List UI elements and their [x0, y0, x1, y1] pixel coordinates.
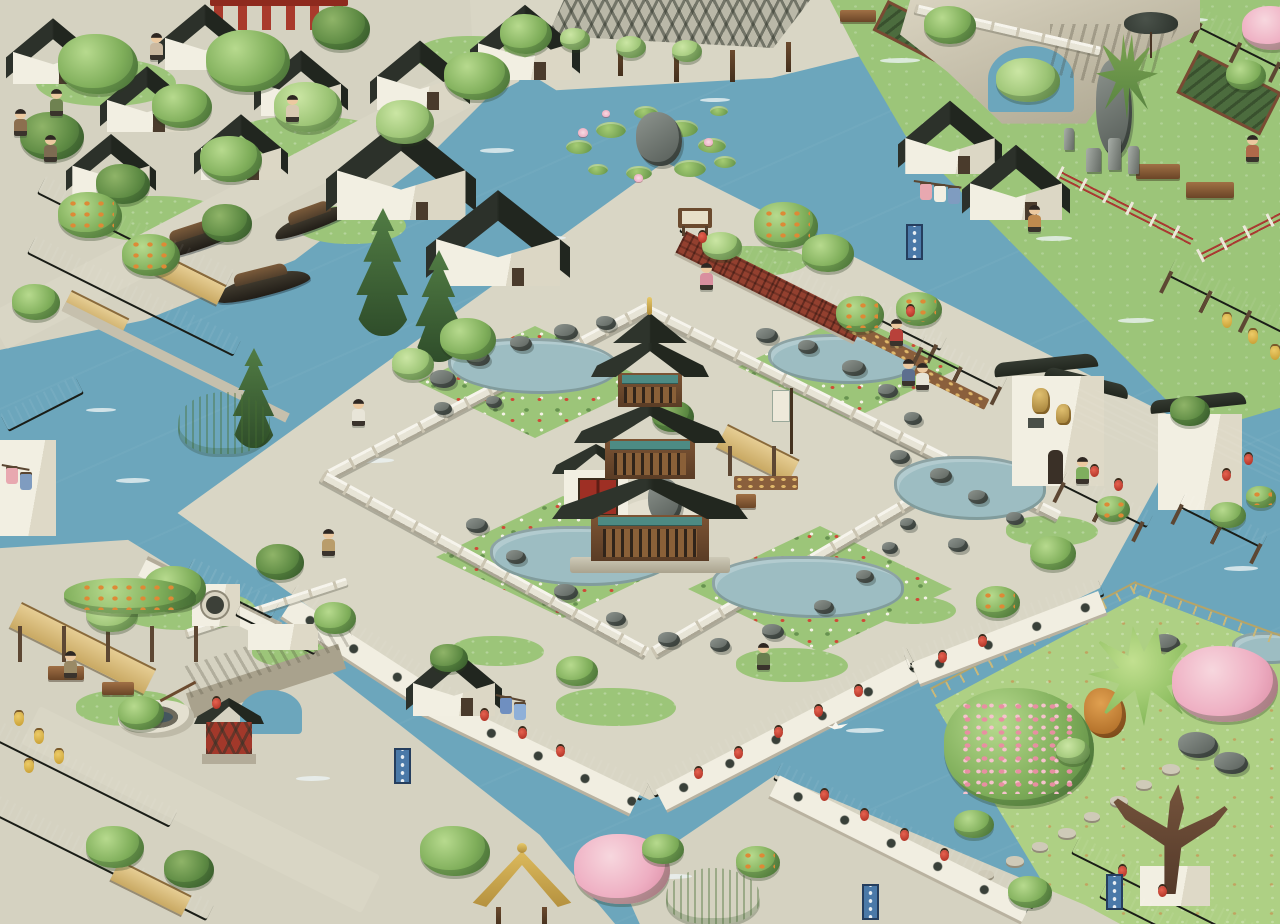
red-lantern — [820, 790, 829, 801]
garden-rock — [506, 550, 526, 564]
villager[interactable] — [700, 264, 713, 290]
lotus-pad — [596, 122, 626, 138]
garden-rock — [842, 360, 866, 376]
pavilion-column — [496, 907, 501, 924]
bench[interactable] — [840, 10, 876, 22]
game-map-viewport[interactable] — [0, 0, 1280, 924]
pagoda-storey — [591, 515, 709, 561]
lotus-pad — [674, 160, 706, 177]
tree — [440, 318, 496, 360]
red-lantern — [1114, 480, 1123, 491]
buddha-statue — [1032, 388, 1050, 414]
villager[interactable] — [1076, 458, 1089, 484]
pergola-post — [730, 50, 735, 82]
grass-patch — [556, 688, 676, 726]
pagoda-finial — [647, 297, 652, 315]
drying-corn — [1222, 314, 1232, 328]
board-paper — [682, 211, 708, 224]
tree — [12, 284, 60, 320]
door[interactable] — [1048, 450, 1063, 484]
villager[interactable] — [890, 320, 903, 346]
tree — [836, 296, 884, 332]
tree — [736, 846, 780, 878]
tree — [672, 40, 702, 62]
tree — [954, 810, 994, 838]
shop-sign-banner[interactable] — [394, 748, 411, 784]
tree — [924, 6, 976, 44]
cloth-banner — [772, 390, 790, 422]
red-lantern — [1090, 466, 1099, 477]
stepping-stone — [1006, 856, 1024, 866]
vine-pergola[interactable] — [548, 0, 858, 90]
red-lantern — [938, 652, 947, 663]
red-lantern — [854, 686, 863, 697]
tree — [444, 52, 510, 100]
tree — [274, 82, 342, 132]
stepping-stone — [1136, 780, 1152, 789]
tree — [202, 204, 252, 242]
tree — [58, 192, 122, 238]
tree — [314, 602, 356, 634]
red-lantern — [978, 636, 987, 647]
tree — [1096, 496, 1130, 522]
garden-rock — [798, 340, 818, 354]
tree — [118, 696, 164, 730]
red-lantern — [940, 850, 949, 861]
tree — [616, 36, 646, 58]
villager[interactable] — [14, 110, 27, 136]
lotus-flower — [704, 138, 713, 146]
drying-corn — [34, 730, 44, 744]
tile-roof-house[interactable] — [426, 184, 570, 286]
red-lantern — [734, 748, 743, 759]
tree — [1210, 502, 1246, 528]
lotus-flower — [578, 128, 588, 137]
stepping-stone — [1162, 764, 1180, 774]
work-table[interactable] — [1186, 182, 1234, 198]
tree — [1246, 486, 1276, 508]
villager[interactable] — [757, 644, 770, 670]
tree — [420, 826, 490, 876]
villager[interactable] — [44, 136, 57, 162]
stepping-stone — [1084, 812, 1100, 821]
villager[interactable] — [286, 96, 299, 122]
garden-rock — [486, 396, 502, 408]
garden-rock — [658, 632, 680, 647]
red-lantern — [814, 706, 823, 717]
red-lantern — [518, 728, 527, 739]
tree — [1056, 738, 1090, 764]
garden-rock — [762, 624, 784, 639]
red-lantern — [556, 746, 565, 757]
lotus-flower — [634, 174, 643, 182]
garden-rock — [890, 450, 910, 464]
work-table[interactable] — [1136, 164, 1180, 179]
drying-laundry — [920, 184, 932, 200]
stone-stele — [1128, 146, 1139, 174]
garden-rock — [466, 518, 488, 533]
garden-rock — [948, 538, 968, 552]
drying-corn — [1248, 330, 1258, 344]
pagoda-cap-roof — [613, 313, 687, 343]
lotus-pad — [710, 106, 728, 116]
garden-rock — [710, 638, 730, 652]
tree — [122, 234, 180, 276]
villager[interactable] — [916, 364, 929, 390]
red-lantern — [212, 698, 221, 709]
garden-rock — [814, 600, 834, 614]
red-lantern — [906, 306, 915, 317]
garden-rock — [882, 542, 898, 554]
tree — [976, 586, 1020, 618]
garden-rock — [930, 468, 952, 483]
tree — [500, 14, 552, 54]
tree — [1170, 396, 1210, 426]
red-lantern — [1158, 886, 1167, 897]
tree — [1226, 60, 1266, 90]
drying-laundry — [20, 474, 32, 490]
drying-laundry — [934, 186, 946, 202]
shop-sign-banner[interactable] — [906, 224, 923, 260]
pagoda-eave — [574, 403, 726, 443]
red-lantern — [900, 830, 909, 841]
pagoda-eave — [552, 475, 748, 519]
garden-rock — [430, 370, 456, 388]
red-lantern — [860, 810, 869, 821]
annex-wall — [248, 624, 318, 650]
drying-corn — [24, 760, 34, 773]
stone-stele — [1108, 138, 1121, 170]
villager[interactable] — [322, 530, 335, 556]
notice-board[interactable] — [678, 208, 712, 238]
red-lantern — [1244, 454, 1253, 465]
villager[interactable] — [1246, 136, 1259, 162]
red-lantern — [480, 710, 489, 721]
gable-window — [1028, 418, 1044, 428]
tree — [312, 6, 370, 50]
drying-corn — [14, 712, 24, 726]
stepping-stone — [1058, 828, 1076, 838]
tree — [1008, 876, 1052, 908]
shop-sign-banner[interactable] — [862, 884, 879, 920]
stepping-stone — [1032, 842, 1048, 851]
tree — [702, 232, 742, 260]
garden-rock — [554, 584, 578, 600]
moon-window — [206, 596, 224, 614]
villager[interactable] — [1028, 206, 1041, 232]
blossom-tree — [1172, 646, 1278, 722]
board-leg — [682, 226, 685, 236]
red-lantern — [774, 727, 783, 738]
pagoda-storey — [605, 439, 695, 479]
flower-vine — [64, 578, 196, 614]
tree — [152, 84, 212, 128]
buddha-statue — [1056, 404, 1071, 425]
garden-rock — [606, 612, 626, 626]
stone-stele — [1064, 128, 1074, 150]
villager[interactable] — [64, 652, 77, 678]
garden-rock — [1006, 512, 1024, 525]
villager[interactable] — [150, 34, 163, 60]
red-lantern — [698, 232, 707, 243]
central-pagoda[interactable] — [540, 295, 760, 573]
tree — [392, 348, 434, 380]
tree — [256, 544, 304, 580]
villager[interactable] — [352, 400, 365, 426]
canal-house[interactable] — [962, 140, 1070, 220]
shop-sign-banner[interactable] — [1106, 874, 1123, 910]
red-lantern — [1222, 470, 1231, 481]
tree — [86, 826, 144, 868]
garden-rock — [856, 570, 874, 583]
lotus-pad — [714, 156, 736, 168]
pagoda-eave — [591, 339, 709, 377]
tree — [164, 850, 214, 888]
stone-stele — [1086, 148, 1101, 172]
garden-rock — [900, 518, 916, 530]
drying-corn — [54, 750, 64, 764]
gold-finial — [517, 843, 527, 853]
garden-rock — [1178, 732, 1218, 758]
pole — [790, 388, 793, 454]
villager[interactable] — [50, 90, 63, 116]
willow-tree — [178, 392, 270, 454]
garden-rock — [510, 336, 532, 351]
drying-laundry — [500, 698, 512, 714]
red-lantern — [694, 768, 703, 779]
oil-paper-umbrella — [1124, 12, 1178, 34]
pavilion-column — [542, 907, 547, 924]
grass-patch — [736, 648, 848, 682]
lotus-pad — [588, 164, 608, 175]
tree — [430, 644, 468, 672]
tree — [560, 28, 590, 50]
drying-laundry — [514, 704, 526, 720]
tree — [58, 34, 138, 94]
tree — [200, 136, 262, 182]
villager[interactable] — [902, 360, 915, 386]
drying-laundry — [6, 468, 18, 484]
tree — [802, 234, 854, 272]
banner-pole — [772, 388, 812, 458]
drying-laundry — [948, 188, 960, 204]
willow-tree — [666, 868, 760, 924]
tree — [376, 100, 434, 144]
pagoda-storey — [618, 373, 682, 407]
pergola-post — [786, 42, 791, 72]
garden-rock — [968, 490, 988, 504]
tree — [556, 656, 598, 686]
garden-rock — [1214, 752, 1248, 774]
garden-rock — [904, 412, 922, 425]
lotus-flower — [602, 110, 610, 117]
drying-corn — [1270, 346, 1280, 360]
tree — [206, 30, 290, 92]
lotus-pad — [566, 140, 592, 154]
tree — [642, 834, 684, 864]
garden-rock — [878, 384, 898, 398]
garden-rock — [434, 402, 452, 415]
tree — [996, 58, 1060, 102]
tree — [1030, 536, 1076, 570]
